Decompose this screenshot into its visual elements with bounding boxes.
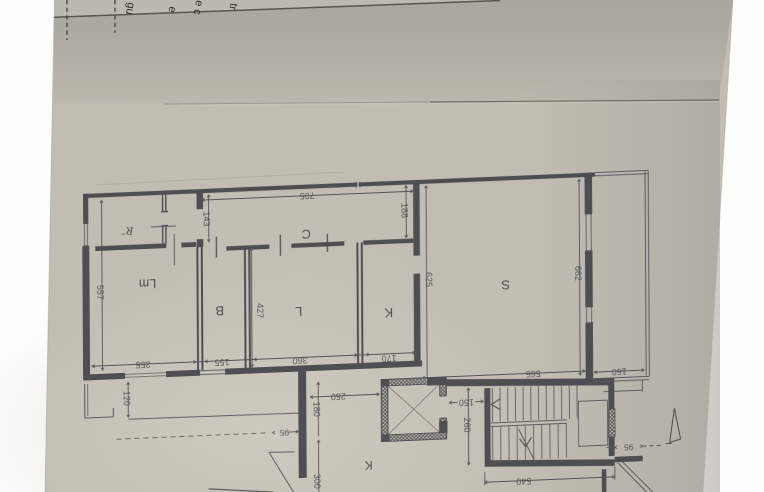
svg-text:625: 625 — [424, 272, 434, 287]
svg-text:K: K — [384, 305, 393, 320]
svg-text:120: 120 — [122, 391, 132, 406]
svg-text:188: 188 — [399, 203, 409, 218]
svg-text:e c: e c — [191, 0, 205, 16]
svg-text:705: 705 — [300, 190, 315, 201]
svg-text:170: 170 — [382, 353, 397, 364]
svg-text:565: 565 — [526, 368, 541, 379]
svg-text:180: 180 — [312, 402, 322, 417]
svg-text:662: 662 — [573, 266, 583, 281]
svg-text:300: 300 — [312, 474, 322, 489]
svg-text:L: L — [295, 304, 302, 319]
svg-text:150: 150 — [459, 397, 474, 408]
svg-text:540: 540 — [516, 476, 531, 487]
svg-text:427: 427 — [255, 303, 265, 318]
svg-text:143: 143 — [202, 211, 212, 226]
svg-text:160: 160 — [612, 366, 627, 377]
svg-text:250: 250 — [331, 391, 346, 402]
svg-text:260: 260 — [462, 417, 472, 432]
svg-text:Lm: Lm — [139, 276, 156, 291]
svg-text:gu: gu — [123, 1, 137, 15]
svg-text:K: K — [365, 458, 373, 472]
svg-text:S: S — [501, 277, 510, 292]
svg-text:155: 155 — [214, 357, 229, 368]
svg-text:C: C — [302, 227, 311, 242]
svg-text:95: 95 — [624, 442, 634, 452]
svg-text:Rˉ: Rˉ — [121, 224, 134, 239]
svg-text:360: 360 — [292, 355, 307, 366]
svg-text:355: 355 — [135, 359, 150, 370]
svg-text:B: B — [215, 303, 224, 318]
svg-text:95: 95 — [279, 427, 289, 437]
svg-text:557: 557 — [95, 285, 105, 300]
